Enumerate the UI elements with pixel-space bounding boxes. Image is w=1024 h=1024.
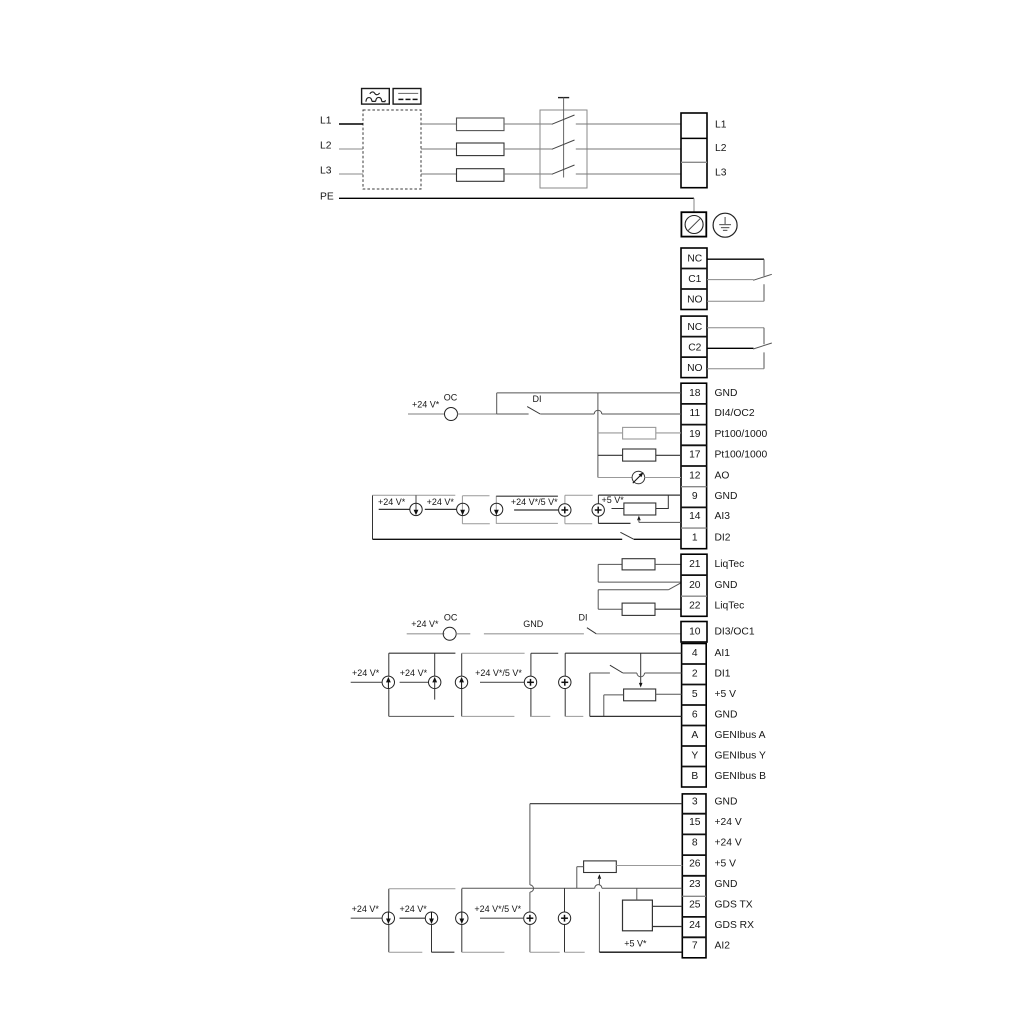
svg-text:NO: NO <box>687 295 702 306</box>
svg-text:+24 V*/5 V*: +24 V*/5 V* <box>475 668 522 678</box>
svg-text:2: 2 <box>692 669 698 680</box>
svg-text:9: 9 <box>692 491 698 502</box>
svg-text:GND: GND <box>715 797 738 808</box>
svg-text:+24 V*: +24 V* <box>400 904 428 914</box>
svg-text:+24 V*/5 V*: +24 V*/5 V* <box>511 497 558 507</box>
svg-text:1: 1 <box>692 532 698 543</box>
svg-text:L2: L2 <box>715 143 727 154</box>
svg-text:3: 3 <box>692 797 698 808</box>
svg-text:OC: OC <box>444 613 458 623</box>
svg-text:DI2: DI2 <box>715 532 731 543</box>
svg-text:6: 6 <box>692 710 698 721</box>
svg-text:GENIbus Y: GENIbus Y <box>715 751 766 762</box>
svg-text:GND: GND <box>715 710 738 721</box>
svg-text:GND: GND <box>715 580 738 591</box>
svg-text:+24 V*: +24 V* <box>352 668 380 678</box>
svg-text:DI3/OC1: DI3/OC1 <box>715 627 755 638</box>
svg-text:+24 V*: +24 V* <box>352 904 380 914</box>
svg-text:AI2: AI2 <box>715 940 731 951</box>
svg-text:20: 20 <box>689 580 701 591</box>
svg-text:LiqTec: LiqTec <box>715 601 745 612</box>
svg-text:24: 24 <box>689 920 701 931</box>
svg-text:Pt100/1000: Pt100/1000 <box>715 450 768 461</box>
svg-text:AI1: AI1 <box>715 648 731 659</box>
svg-text:AI3: AI3 <box>715 511 731 522</box>
svg-text:DI: DI <box>533 394 542 404</box>
svg-text:GND: GND <box>715 491 738 502</box>
svg-text:15: 15 <box>689 817 701 828</box>
svg-text:+5 V*: +5 V* <box>602 495 625 505</box>
svg-text:5: 5 <box>692 689 698 700</box>
svg-text:7: 7 <box>692 940 698 951</box>
svg-text:23: 23 <box>689 879 701 890</box>
svg-text:11: 11 <box>689 408 700 419</box>
svg-text:DI1: DI1 <box>715 669 731 680</box>
svg-text:Pt100/1000: Pt100/1000 <box>715 429 768 440</box>
svg-text:L1: L1 <box>320 115 332 126</box>
svg-text:L2: L2 <box>320 140 332 151</box>
svg-text:GND: GND <box>715 388 738 399</box>
svg-text:+5 V: +5 V <box>715 689 737 700</box>
svg-text:PE: PE <box>320 191 334 202</box>
svg-text:+24 V*: +24 V* <box>400 668 428 678</box>
svg-text:AO: AO <box>715 470 730 481</box>
svg-text:L3: L3 <box>715 167 727 178</box>
svg-text:+24 V: +24 V <box>715 817 742 828</box>
svg-text:+5 V*: +5 V* <box>624 939 647 949</box>
svg-text:+24 V*: +24 V* <box>411 619 439 629</box>
svg-text:25: 25 <box>689 900 701 911</box>
svg-text:A: A <box>691 730 698 741</box>
svg-text:GDS RX: GDS RX <box>715 920 755 931</box>
svg-text:26: 26 <box>689 858 701 869</box>
svg-text:12: 12 <box>689 470 701 481</box>
svg-text:+24 V*: +24 V* <box>412 400 440 410</box>
svg-text:OC: OC <box>444 393 458 403</box>
svg-text:B: B <box>691 771 698 782</box>
svg-text:GDS TX: GDS TX <box>715 900 753 911</box>
svg-text:NC: NC <box>687 322 702 333</box>
svg-text:18: 18 <box>689 388 701 399</box>
svg-text:4: 4 <box>692 648 698 659</box>
svg-text:C1: C1 <box>688 274 701 285</box>
svg-text:L3: L3 <box>320 165 332 176</box>
svg-text:Y: Y <box>691 751 698 762</box>
svg-text:+24 V*: +24 V* <box>378 497 406 507</box>
svg-text:NC: NC <box>687 254 702 265</box>
svg-text:+24 V*/5 V*: +24 V*/5 V* <box>474 904 521 914</box>
svg-text:NO: NO <box>687 363 702 374</box>
svg-text:8: 8 <box>692 838 698 849</box>
svg-text:DI: DI <box>579 613 588 623</box>
svg-text:19: 19 <box>689 429 701 440</box>
svg-text:GENIbus A: GENIbus A <box>715 730 766 741</box>
svg-text:GND: GND <box>523 619 544 629</box>
svg-text:+24 V: +24 V <box>715 838 742 849</box>
svg-text:10: 10 <box>689 627 701 638</box>
svg-text:14: 14 <box>689 511 701 522</box>
svg-text:22: 22 <box>689 601 701 612</box>
svg-text:GENIbus B: GENIbus B <box>715 771 767 782</box>
svg-text:17: 17 <box>689 450 701 461</box>
svg-text:+5 V: +5 V <box>715 858 737 869</box>
svg-text:LiqTec: LiqTec <box>715 559 745 570</box>
svg-text:GND: GND <box>715 879 738 890</box>
svg-text:+24 V*: +24 V* <box>427 497 455 507</box>
svg-text:21: 21 <box>689 559 701 570</box>
svg-text:C2: C2 <box>688 342 701 353</box>
svg-text:DI4/OC2: DI4/OC2 <box>715 408 755 419</box>
svg-text:L1: L1 <box>715 119 727 130</box>
